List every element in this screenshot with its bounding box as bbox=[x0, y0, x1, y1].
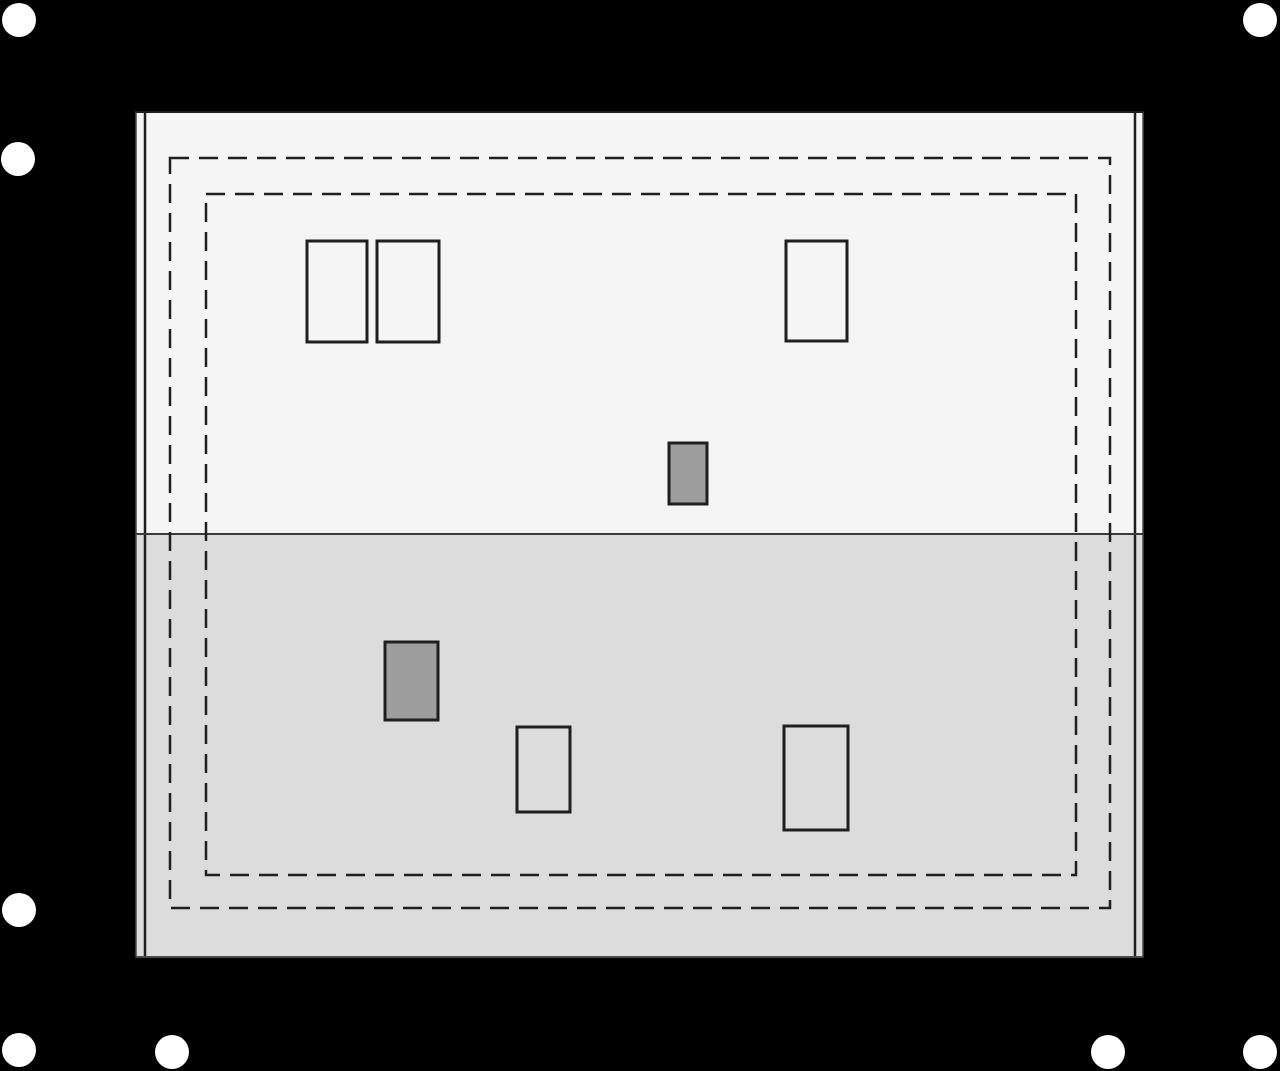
marker-dot-1 bbox=[2, 3, 36, 37]
marker-dot-5 bbox=[2, 1033, 36, 1067]
roof-plan-canvas bbox=[0, 0, 1280, 1071]
roof-body-layer bbox=[136, 112, 1143, 957]
marker-dot-8 bbox=[1243, 1035, 1277, 1069]
chimney-2 bbox=[385, 642, 438, 720]
marker-dot-4 bbox=[2, 893, 36, 927]
marker-dot-3 bbox=[1, 142, 35, 176]
marker-dot-7 bbox=[1091, 1035, 1125, 1069]
upper-roof-slope bbox=[136, 112, 1143, 534]
marker-dot-2 bbox=[1243, 3, 1277, 37]
marker-dot-6 bbox=[155, 1035, 189, 1069]
chimney-1 bbox=[669, 443, 707, 504]
diagram-stage bbox=[0, 0, 1280, 1071]
lower-roof-slope bbox=[136, 534, 1143, 957]
